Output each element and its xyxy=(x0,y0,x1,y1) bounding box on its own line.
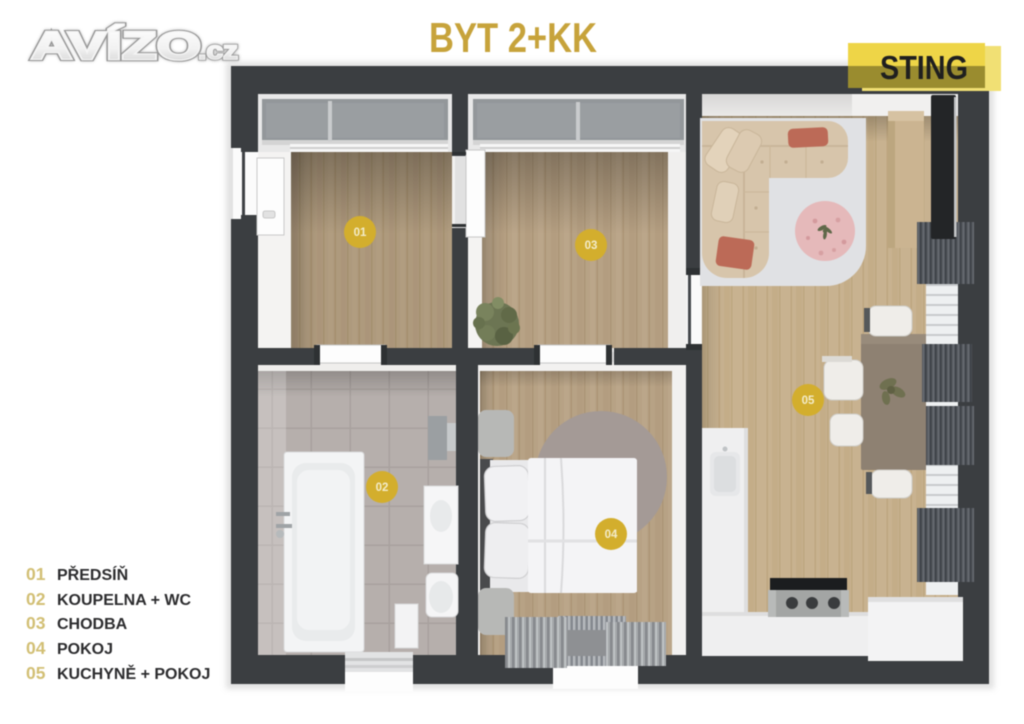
svg-text:STING: STING xyxy=(880,49,968,86)
svg-text:KOUPELNA + WC: KOUPELNA + WC xyxy=(57,592,192,609)
svg-text:.cz: .cz xyxy=(198,37,238,65)
svg-text:04: 04 xyxy=(26,638,46,658)
svg-text:03: 03 xyxy=(26,613,46,633)
svg-text:POKOJ: POKOJ xyxy=(57,641,113,658)
svg-text:05: 05 xyxy=(26,663,46,683)
svg-text:04: 04 xyxy=(605,529,618,541)
svg-text:AVÍZO: AVÍZO xyxy=(31,24,201,68)
svg-text:01: 01 xyxy=(354,227,367,239)
svg-text:CHODBA: CHODBA xyxy=(57,616,128,633)
svg-text:03: 03 xyxy=(585,240,598,252)
svg-text:01: 01 xyxy=(26,564,46,584)
svg-text:BYT 2+KK: BYT 2+KK xyxy=(429,14,597,61)
svg-text:02: 02 xyxy=(376,482,389,494)
svg-text:02: 02 xyxy=(26,589,46,609)
svg-text:05: 05 xyxy=(802,395,815,407)
svg-text:PŘEDSÍŇ: PŘEDSÍŇ xyxy=(57,565,128,584)
svg-text:KUCHYNĚ + POKOJ: KUCHYNĚ + POKOJ xyxy=(57,664,210,683)
